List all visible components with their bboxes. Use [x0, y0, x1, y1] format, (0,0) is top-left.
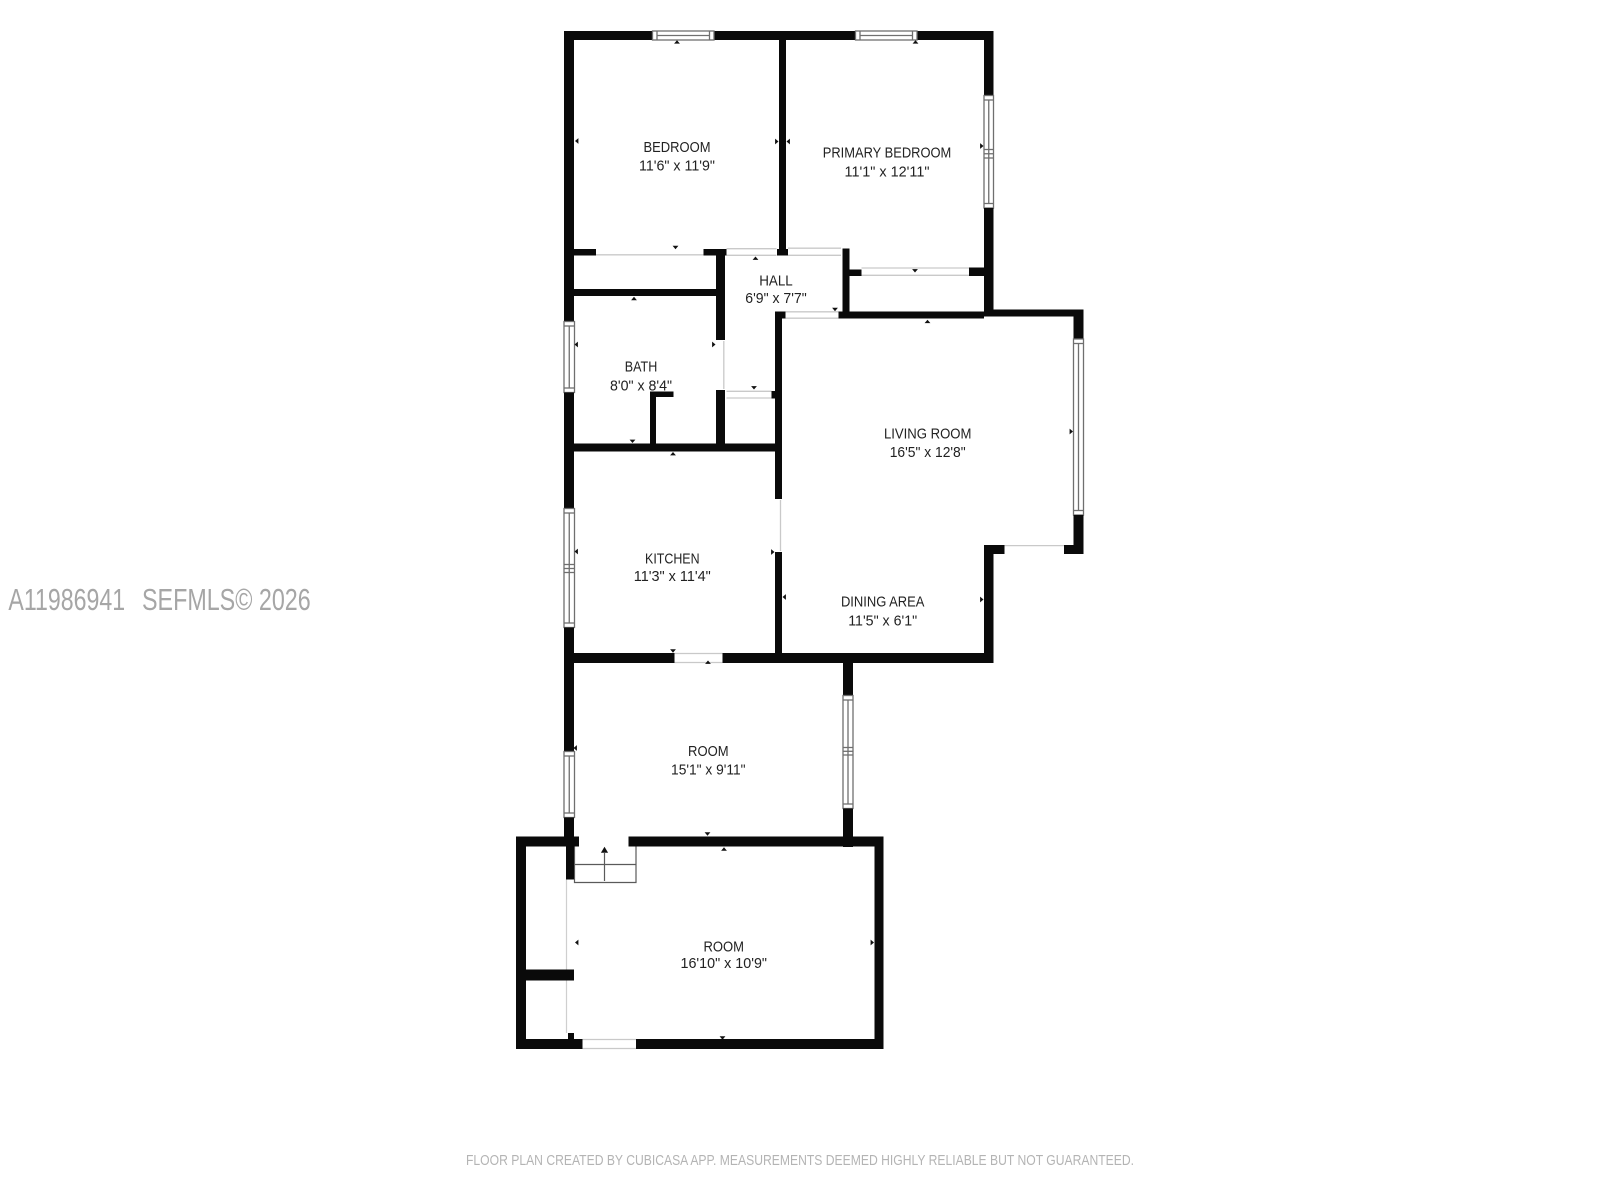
svg-text:ROOM: ROOM [704, 938, 745, 955]
svg-text:SEFMLS© 2026: SEFMLS© 2026 [142, 582, 311, 617]
svg-text:11'3" x 11'4": 11'3" x 11'4" [634, 568, 711, 585]
svg-text:11'6" x 11'9": 11'6" x 11'9" [639, 157, 715, 174]
svg-text:DINING AREA: DINING AREA [841, 593, 925, 610]
svg-text:8'0" x 8'4": 8'0" x 8'4" [610, 377, 672, 394]
svg-text:15'1" x 9'11": 15'1" x 9'11" [671, 762, 746, 779]
svg-text:16'5" x 12'8": 16'5" x 12'8" [890, 444, 966, 461]
svg-text:BEDROOM: BEDROOM [644, 139, 711, 156]
svg-text:ROOM: ROOM [688, 743, 729, 760]
svg-text:11'1" x 12'11": 11'1" x 12'11" [845, 164, 930, 181]
svg-text:16'10" x 10'9": 16'10" x 10'9" [681, 955, 768, 972]
svg-text:PRIMARY BEDROOM: PRIMARY BEDROOM [823, 144, 952, 161]
svg-text:11'5" x 6'1": 11'5" x 6'1" [848, 612, 917, 629]
svg-text:A11986941: A11986941 [8, 582, 125, 617]
svg-text:HALL: HALL [759, 272, 793, 289]
svg-text:BATH: BATH [625, 358, 658, 375]
svg-text:LIVING ROOM: LIVING ROOM [884, 425, 972, 442]
svg-text:KITCHEN: KITCHEN [645, 550, 700, 567]
svg-text:FLOOR PLAN CREATED BY CUBICASA: FLOOR PLAN CREATED BY CUBICASA APP. MEAS… [466, 1153, 1134, 1169]
svg-text:6'9" x 7'7": 6'9" x 7'7" [745, 290, 807, 307]
